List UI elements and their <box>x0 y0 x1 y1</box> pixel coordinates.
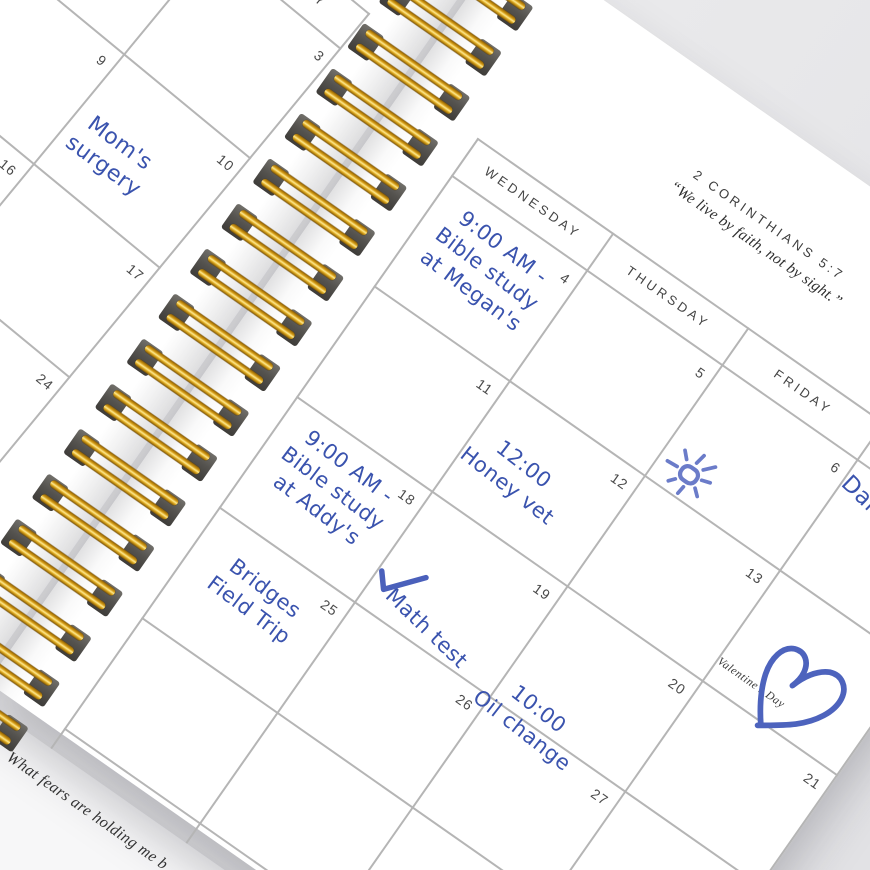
date-number: 5 <box>682 356 709 382</box>
grid-line <box>0 0 342 50</box>
date-number: 24 <box>30 367 57 393</box>
date-number: 10 <box>210 148 237 174</box>
date-number: 16 <box>0 153 20 179</box>
handwritten-entry-honey-vet: 12:00 Honey vet <box>442 409 589 541</box>
date-number: 27 <box>584 783 611 809</box>
date-number: 21 <box>797 767 824 793</box>
day-header-tuesday: TUESDAY <box>225 0 362 36</box>
date-number: 17 <box>120 258 147 284</box>
handwritten-entry-moms-surgery: Mom's surgery <box>38 91 184 220</box>
date-number: 3 <box>301 39 328 65</box>
handwritten-entry-field-trip: Bridges Field Trip <box>182 533 333 665</box>
sun-doodle <box>650 435 728 513</box>
date-number: 20 <box>662 672 689 698</box>
date-number: 11 <box>469 372 496 398</box>
date-number: 9 <box>83 43 110 69</box>
date-number: 12 <box>604 467 631 493</box>
date-number: 19 <box>527 578 554 604</box>
coil-gold-wire <box>396 0 496 56</box>
date-number: 6 <box>817 451 844 477</box>
handwritten-entry-oil-change: 10:00 Oil change <box>455 653 606 788</box>
planner-photo: What fears are holding me b 2 CORINTHIAN… <box>0 0 870 870</box>
handwritten-entry-daniel-partial: Danie <box>834 470 870 602</box>
date-number: 13 <box>739 562 766 588</box>
heart-doodle <box>727 611 870 770</box>
